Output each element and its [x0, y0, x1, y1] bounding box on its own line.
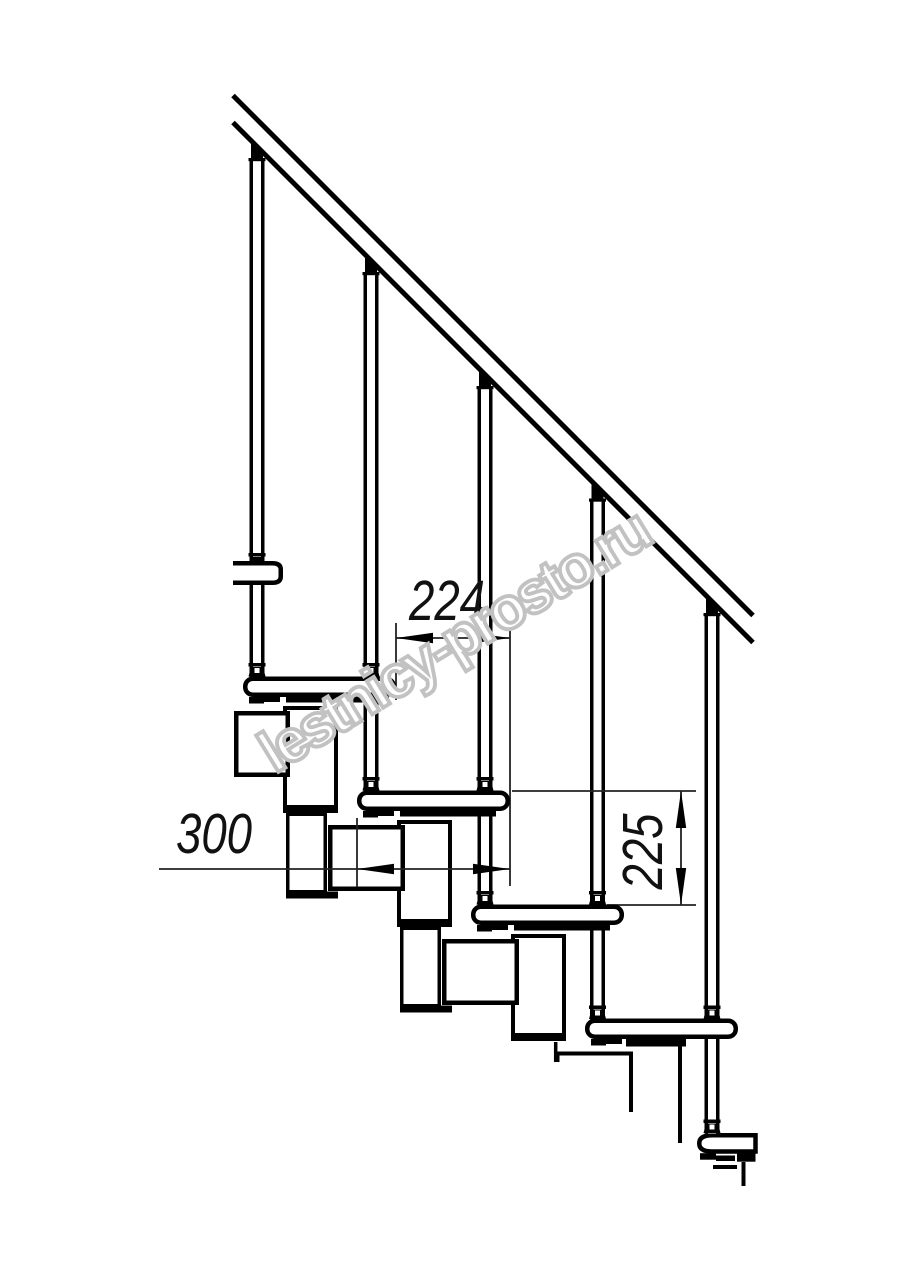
svg-text:225: 225 [610, 813, 674, 890]
svg-text:300: 300 [176, 801, 252, 865]
